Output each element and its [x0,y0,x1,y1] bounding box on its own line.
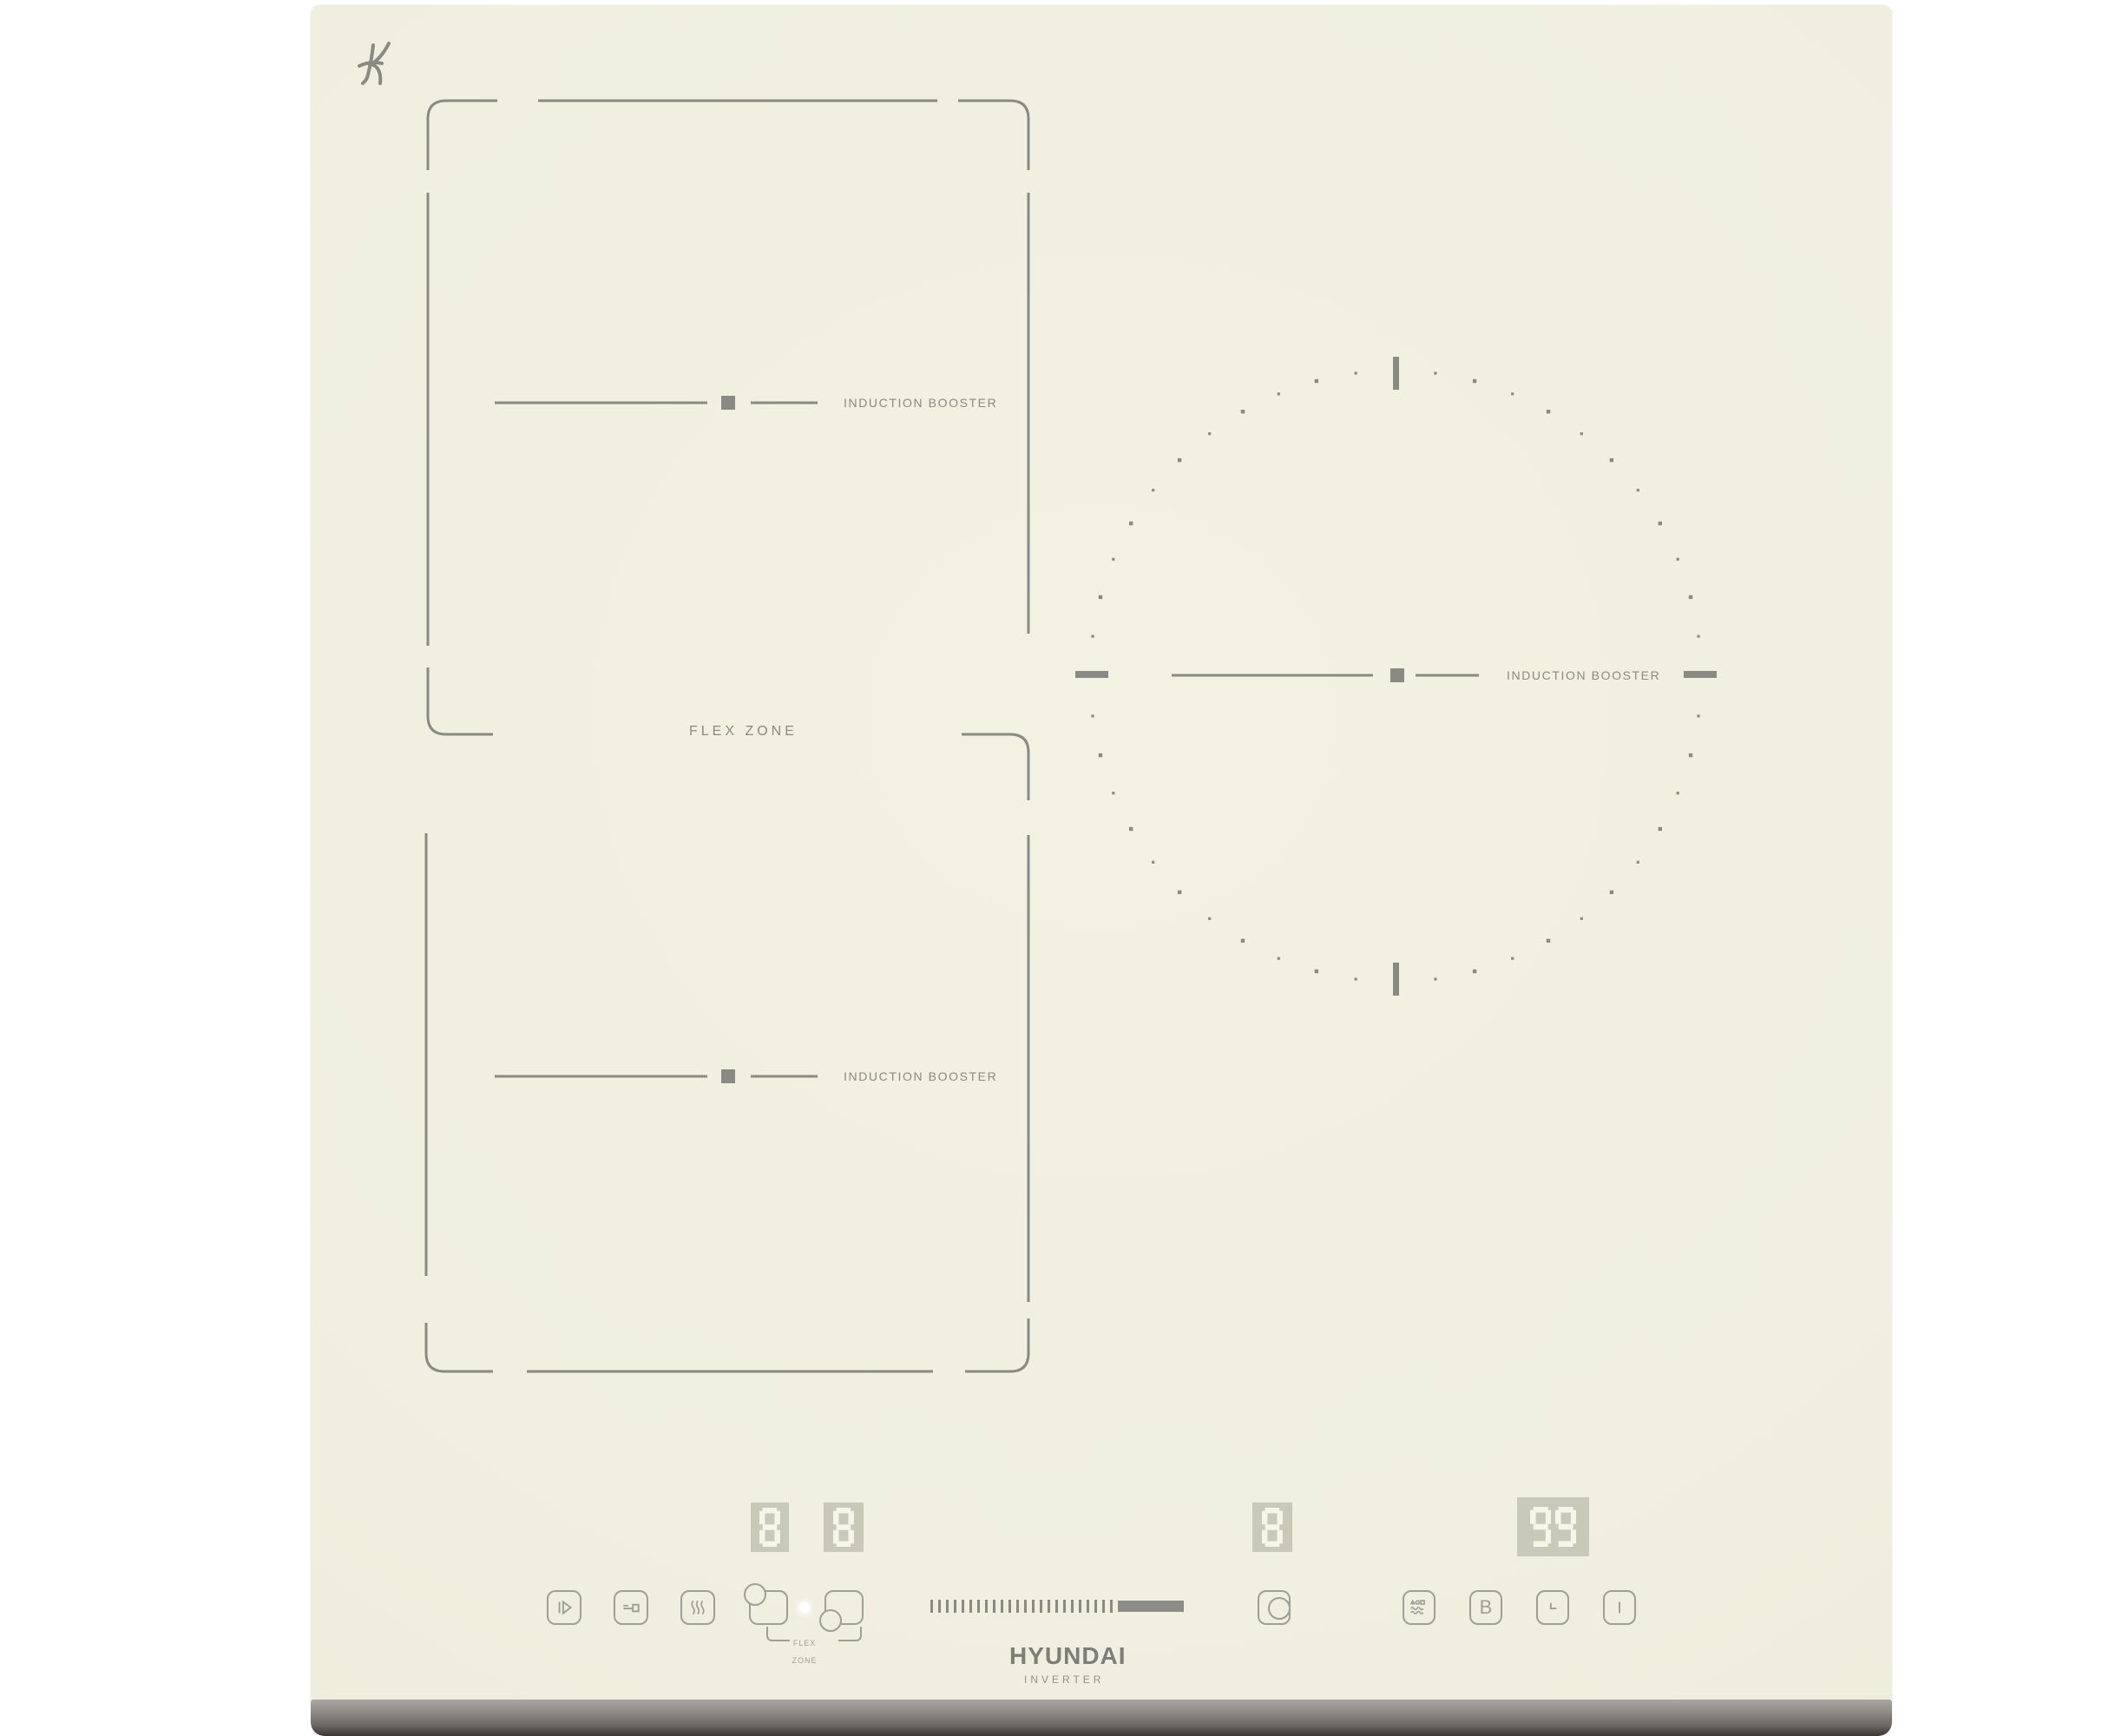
slider-tick[interactable] [993,1600,995,1613]
surface-graphics [0,0,2122,1736]
slider-tick[interactable] [1008,1600,1011,1613]
product-image: INDUCTION BOOSTER INDUCTION BOOSTER INDU… [0,0,2122,1736]
slider-tick[interactable] [1071,1600,1074,1613]
flex-mini-line1: FLEX [793,1639,817,1647]
certification-k-mark-icon [347,31,417,101]
flex-zone-label: FLEX ZONE [689,724,798,740]
slider-tick[interactable] [1094,1600,1097,1613]
slider-tick[interactable] [1016,1600,1019,1613]
slider-tick[interactable] [977,1600,980,1613]
slider-tick[interactable] [1048,1600,1050,1613]
slider-tick[interactable] [946,1600,949,1613]
display-timer [1517,1497,1589,1556]
booster-b-button-label: B [1480,1596,1493,1619]
brand-logo: HYUNDAI [1009,1642,1127,1670]
upper-zone-booster-label: INDUCTION BOOSTER [844,396,997,410]
flex-selector-mini-label: FLEX ZONE [785,1630,824,1665]
shapes-over-waves-icon [1407,1595,1431,1620]
slider-tick[interactable] [1001,1600,1003,1613]
slider-tick[interactable] [1110,1600,1113,1613]
vertical-bar-icon [1608,1596,1631,1619]
slider-tick[interactable] [1055,1600,1058,1613]
slider-tick[interactable] [1079,1600,1081,1613]
key-icon [620,1596,642,1619]
power-icon [553,1596,575,1619]
slider-tick[interactable] [1063,1600,1066,1613]
power-slider[interactable] [930,1600,1184,1613]
slider-tick[interactable] [1040,1600,1042,1613]
slider-tick[interactable] [938,1600,941,1613]
brand-sub-label: INVERTER [1024,1674,1104,1686]
bar-button[interactable] [1603,1590,1636,1625]
right-zone-select-circle-icon [1268,1597,1291,1620]
flex-link-led [799,1602,810,1613]
slider-tick[interactable] [954,1600,956,1613]
slider-tick[interactable] [1032,1600,1035,1613]
slider-tick[interactable] [962,1600,964,1613]
slider-tick[interactable] [985,1600,988,1613]
lower-zone-booster-label: INDUCTION BOOSTER [844,1069,997,1083]
display-right-zone [1252,1503,1292,1552]
power-button[interactable] [547,1590,581,1625]
flex-mini-line2: ZONE [792,1656,817,1665]
keep-warm-button[interactable] [1403,1590,1435,1625]
waves-vertical-icon [687,1596,709,1619]
flex-upper-select-circle-icon [744,1583,766,1606]
slider-tick[interactable] [1024,1600,1027,1613]
slider-tick[interactable] [1102,1600,1105,1613]
child-lock-button[interactable] [614,1590,648,1625]
timer-l-button[interactable] [1536,1590,1569,1625]
booster-button[interactable] [680,1590,715,1625]
slider-fill-block[interactable] [1118,1601,1184,1612]
display-flex-lower [824,1503,864,1552]
slider-tick[interactable] [969,1600,972,1613]
booster-b-button[interactable]: B [1469,1590,1502,1625]
l-mark-icon [1541,1596,1564,1619]
slider-tick[interactable] [1087,1600,1089,1613]
slider-tick[interactable] [930,1600,933,1613]
right-zone-booster-label: INDUCTION BOOSTER [1507,668,1660,682]
display-flex-upper [751,1503,789,1552]
